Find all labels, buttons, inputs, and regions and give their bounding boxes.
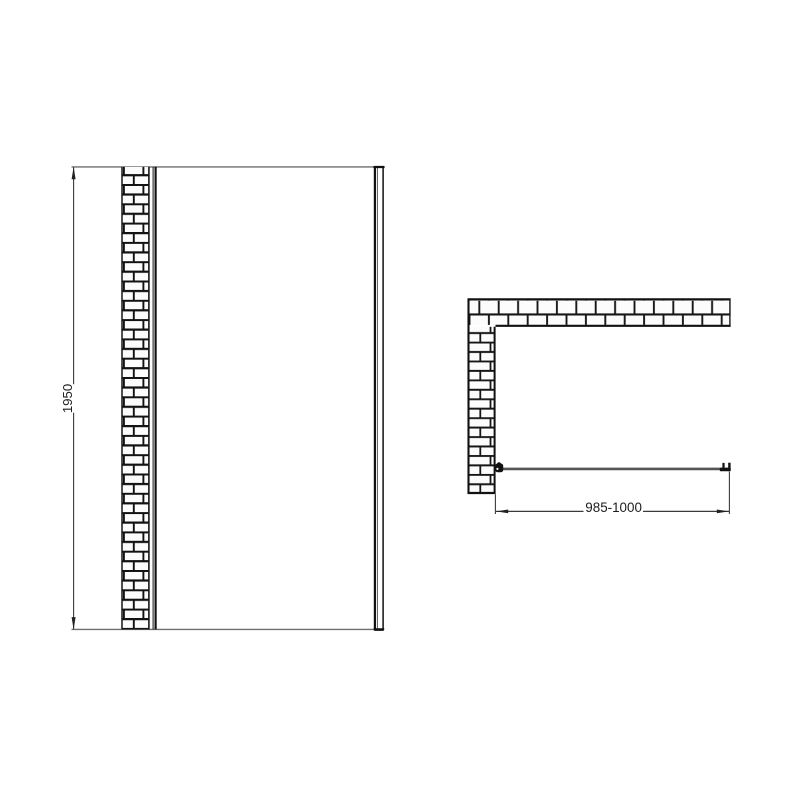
svg-text:985-1000: 985-1000 bbox=[585, 500, 642, 515]
svg-text:1950: 1950 bbox=[60, 384, 75, 413]
